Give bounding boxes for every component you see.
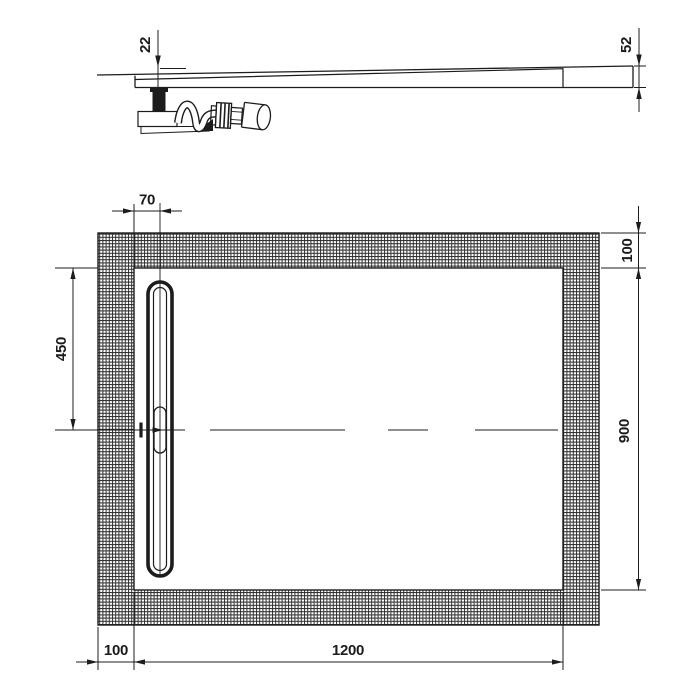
arrow-down-icon [70, 419, 75, 430]
dimension-drain-center-from-top: 450 [53, 268, 98, 430]
arrow-up-icon [70, 268, 75, 279]
arrow-right-icon [87, 659, 98, 664]
technical-drawing-page: 22 52 [0, 0, 700, 700]
dim-label-52: 52 [618, 37, 635, 53]
outlet-pipe [230, 107, 242, 124]
dimension-edge-height: 52 [618, 28, 646, 112]
dimension-inner-height: 900 [601, 419, 646, 590]
arrow-right-icon [552, 659, 563, 664]
dim-label-900: 900 [616, 419, 633, 443]
tray-profile [97, 66, 633, 88]
dim-label-1200: 1200 [332, 642, 364, 659]
drain-center-arrow-icon [153, 427, 164, 433]
dim-label-100-bottom: 100 [104, 642, 128, 659]
dim-label-22: 22 [137, 37, 154, 53]
arrow-down-icon [636, 55, 641, 67]
dimension-top-border: 100 [601, 206, 646, 590]
arrow-down-icon [636, 579, 641, 590]
dim-label-70: 70 [139, 192, 155, 209]
arrow-down-icon [636, 222, 641, 233]
plan-view: 70 450 100 900 100 [53, 192, 646, 671]
pipe-end-cylinder [241, 102, 271, 130]
drain-tailpipe [153, 92, 166, 112]
arrow-right-icon [123, 208, 134, 213]
arrow-down-icon [155, 56, 161, 68]
technical-drawing-canvas: 22 52 [0, 0, 700, 700]
arrow-up-icon [636, 88, 641, 100]
dim-label-450: 450 [53, 337, 70, 361]
trap-body [138, 112, 177, 127]
drain-flange [150, 88, 168, 93]
drain-channel [141, 282, 172, 576]
tray-inner-edge [134, 268, 563, 590]
side-view: 22 52 [97, 28, 646, 134]
arrow-left-icon [160, 208, 171, 213]
arrow-left-icon [134, 659, 145, 664]
drain-trap-assembly [138, 88, 272, 134]
arrow-up-icon [636, 268, 641, 279]
dim-label-100-right: 100 [619, 238, 636, 262]
